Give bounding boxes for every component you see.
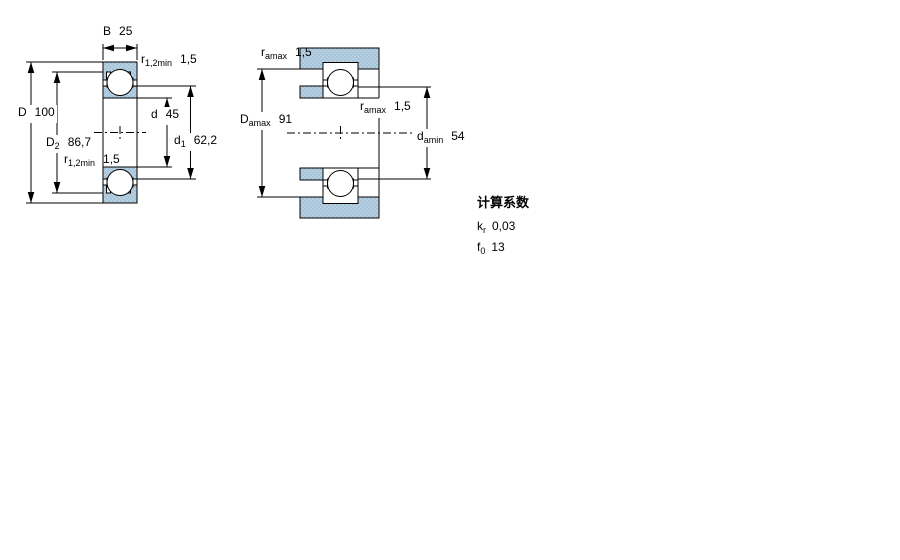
bearing-diagrams-svg — [0, 0, 900, 560]
dim-label-housing-fillet-ra: ramax1,5 — [261, 45, 312, 63]
factor-row-kr: kr0,03 — [477, 219, 529, 237]
calculation-factors-title: 计算系数 — [477, 196, 529, 210]
ext-lines-D — [26, 62, 103, 203]
mounted-ball-top — [328, 70, 354, 96]
factor-row-f0: f013 — [477, 240, 529, 258]
ext-lines-B — [103, 44, 137, 60]
dim-label-chamfer-bottom: r1,2min1,5 — [64, 152, 120, 170]
shaft-shoulder-top — [300, 86, 323, 98]
shaft-shoulder-bottom — [300, 168, 323, 180]
dim-label-width-B: B25 — [103, 24, 132, 42]
dim-label-bore-d: d45 — [149, 107, 181, 125]
dim-label-chamfer-top: r1,2min1,5 — [141, 52, 197, 70]
calculation-factors-block: 计算系数 kr0,03 f013 — [477, 196, 529, 261]
dim-label-shaft-fillet-ra: ramax1,5 — [360, 99, 411, 117]
dim-label-outer-diameter-D: D100 — [16, 105, 57, 123]
dim-label-housing-abutment-Da: Damax91 — [238, 112, 294, 130]
mounted-ball-bottom — [328, 171, 354, 197]
dim-label-shaft-abutment-da: damin54 — [415, 129, 467, 147]
dim-label-shoulder-D2: D286,7 — [44, 135, 93, 153]
dim-symbol: B — [103, 24, 111, 38]
dim-label-shoulder-d1: d162,2 — [172, 133, 219, 151]
axis-centerline-left — [94, 126, 146, 139]
ball-top — [107, 70, 133, 96]
ball-bottom — [107, 170, 133, 196]
bearing-drawing-canvas: B25 r1,2min1,5 D100 D286,7 d45 d162,2 r1… — [0, 0, 900, 560]
